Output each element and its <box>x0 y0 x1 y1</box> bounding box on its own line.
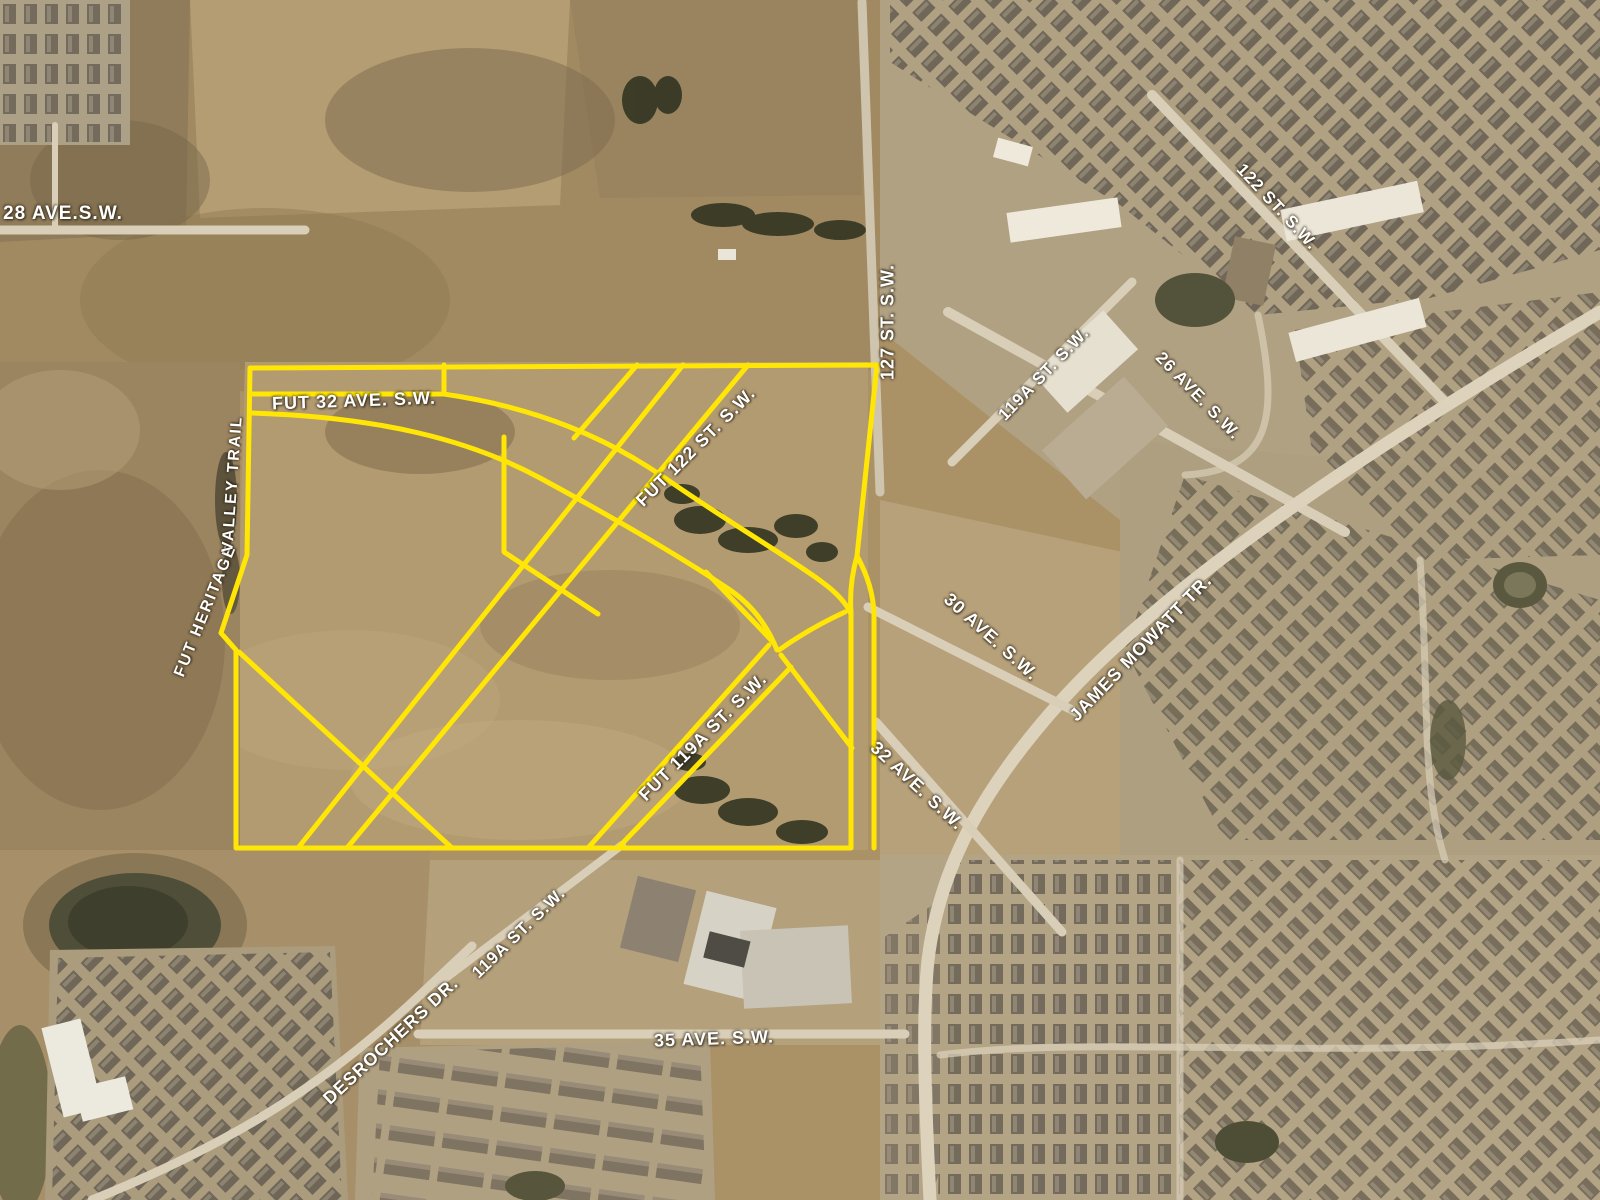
road-label-st-127: 127 ST. S.W. <box>878 264 899 380</box>
road-label-ave-28: 28 AVE.S.W. <box>3 203 123 225</box>
road-label-ave-35: 35 AVE. S.W. <box>654 1026 775 1051</box>
aerial-map-stage: 28 AVE.S.W. FUT 32 AVE. S.W. FUT HERITAG… <box>0 0 1600 1200</box>
aerial-basemap <box>0 0 1600 1200</box>
